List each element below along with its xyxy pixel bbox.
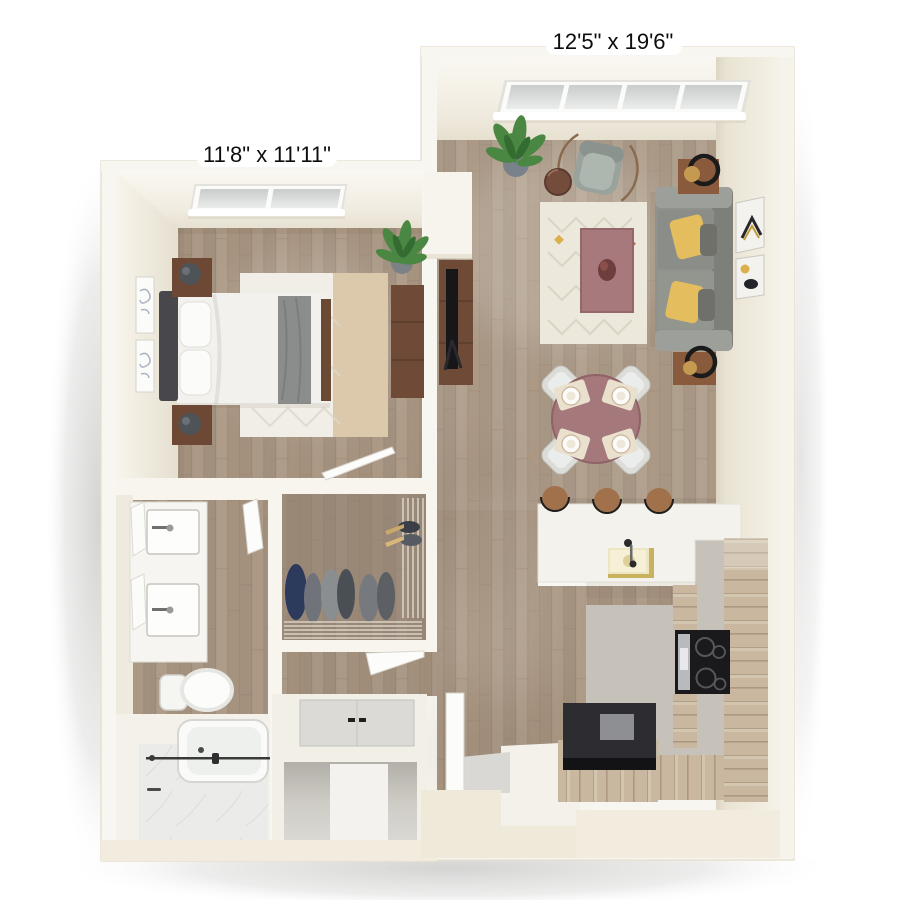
- svg-text:11'8" x 11'11": 11'8" x 11'11": [203, 142, 331, 167]
- svg-text:12'5" x 19'6": 12'5" x 19'6": [553, 29, 674, 54]
